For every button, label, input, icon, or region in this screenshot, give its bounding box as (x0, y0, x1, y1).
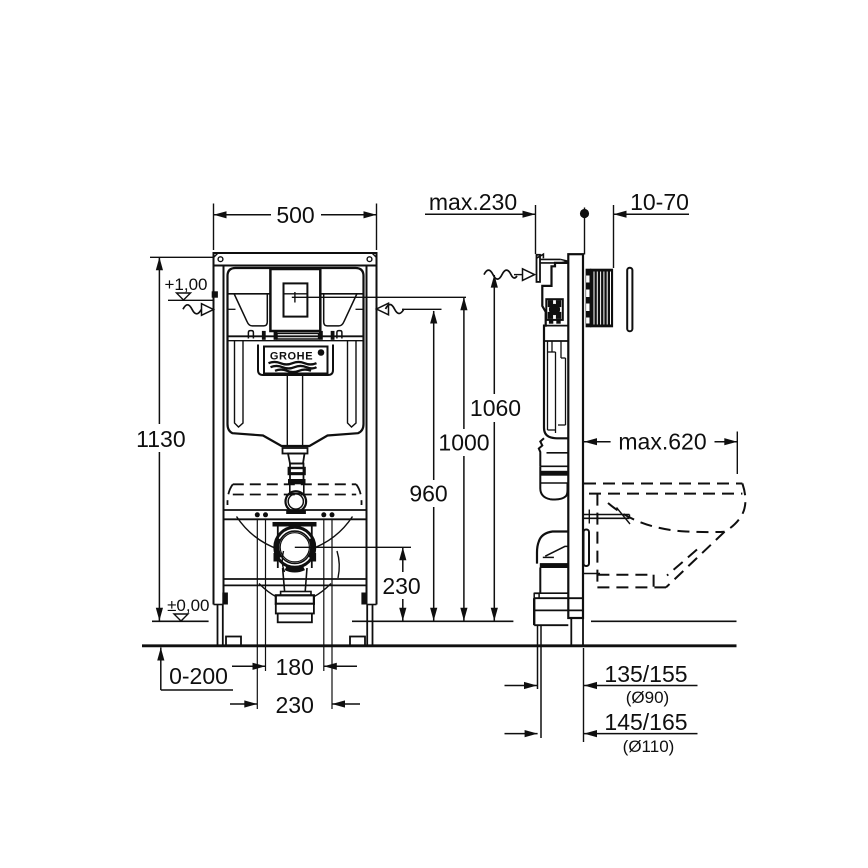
svg-text:1000: 1000 (438, 430, 489, 456)
svg-text:135/155: 135/155 (604, 661, 687, 687)
svg-text:max.620: max.620 (618, 429, 706, 455)
svg-text:max.230: max.230 (429, 189, 517, 215)
svg-text:GROHE: GROHE (270, 351, 313, 363)
svg-text:10-70: 10-70 (630, 189, 689, 215)
svg-text:(Ø90): (Ø90) (626, 688, 669, 707)
svg-text:(Ø110): (Ø110) (623, 737, 675, 756)
svg-text:+1,00: +1,00 (164, 275, 207, 294)
svg-text:145/165: 145/165 (604, 709, 687, 735)
svg-text:180: 180 (276, 654, 314, 680)
svg-text:±0,00: ±0,00 (167, 596, 209, 615)
svg-text:960: 960 (409, 481, 447, 507)
svg-text:230: 230 (276, 692, 314, 718)
svg-text:500: 500 (276, 202, 314, 228)
svg-text:0-200: 0-200 (169, 663, 228, 689)
svg-text:1130: 1130 (136, 426, 185, 452)
svg-text:230: 230 (382, 573, 420, 599)
svg-text:1060: 1060 (470, 395, 521, 421)
